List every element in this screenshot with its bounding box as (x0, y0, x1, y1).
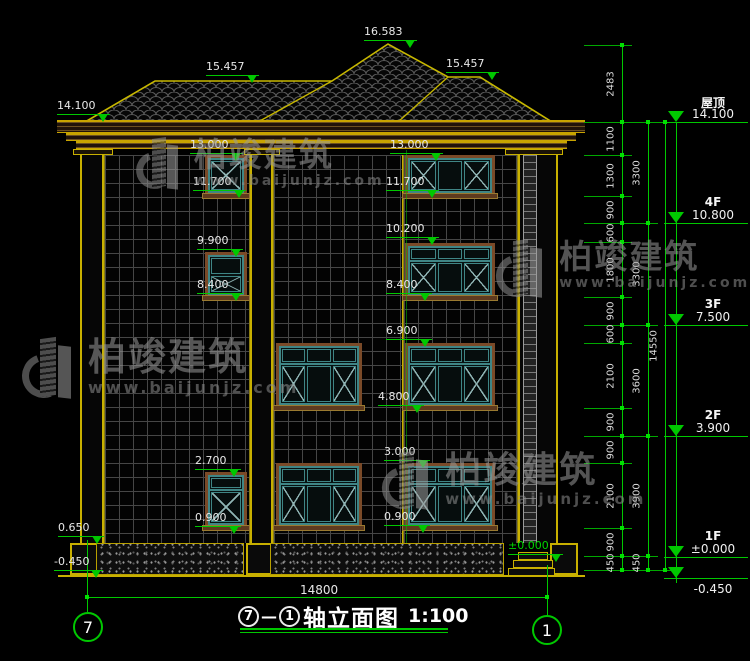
dimension-value: 600 (606, 324, 617, 343)
axis-7-label: 7 (83, 618, 93, 637)
dimension-value: 14550 (649, 330, 660, 362)
dim-tick-dot (620, 434, 624, 438)
transom-lite (464, 469, 489, 482)
elevation-label: 3.000 (384, 446, 430, 461)
fixed-center (438, 366, 463, 403)
casement-left (282, 486, 305, 523)
watermark-logo-tower (40, 337, 56, 397)
cad-elevation-drawing: 16.58315.45715.45714.10013.00011.7009.90… (0, 0, 750, 661)
elevation-label: 0.900 (195, 512, 241, 527)
casement-right (464, 161, 489, 190)
axis-1-label: 1 (542, 621, 552, 640)
fixed-center (438, 486, 463, 523)
elevation-label: 8.400 (386, 279, 432, 294)
floor-elevation: ±0.000 (678, 542, 748, 556)
dim-tick-dot (620, 221, 624, 225)
elevation-label: 13.000 (390, 139, 443, 154)
title-axis-to-bubble: 1 (279, 606, 300, 627)
elevation-label: 11.700 (193, 176, 246, 191)
elevation-label: ±0.000 (508, 540, 563, 555)
dimension-value: 3300 (632, 160, 643, 185)
dim-tick-dot (620, 153, 624, 157)
window-transom (281, 348, 357, 365)
roof-shape (78, 38, 560, 126)
floor-marker-line-vertical (676, 122, 677, 583)
window-transom (281, 468, 357, 485)
title-underline-1 (240, 628, 448, 630)
floor-name: 2F (678, 408, 748, 422)
window-transom (210, 477, 242, 491)
transom-lite (438, 349, 463, 362)
dimension-value: 450 (632, 553, 643, 572)
dim-tick-dot (663, 120, 667, 124)
dim-tick-dot (620, 323, 624, 327)
dim-tick (584, 155, 632, 156)
floor-level-line (664, 122, 748, 123)
window-frame (279, 466, 359, 525)
transom-lite (333, 469, 356, 482)
title-scale: 1:100 (408, 605, 468, 627)
fixed-top (211, 258, 241, 274)
foundation-hatch-left (96, 543, 244, 575)
dimension-value: 900 (606, 301, 617, 320)
transom-lite (211, 478, 241, 488)
floor-level-triangle (668, 567, 684, 578)
fixed-center (307, 366, 330, 403)
dimension-value: 3900 (632, 483, 643, 508)
dim-tick (584, 45, 632, 46)
elevation-label: 11.700 (386, 176, 439, 191)
floor-name: 3F (678, 297, 748, 311)
dim-tick-dot (646, 120, 650, 124)
dimension-value: 1300 (606, 163, 617, 188)
dim-tick-dot (663, 568, 667, 572)
transom-lite (411, 249, 436, 259)
fixed-center (438, 161, 463, 190)
elevation-label: 4.800 (378, 391, 424, 406)
dimension-value: 900 (606, 200, 617, 219)
floor-elevation: 7.500 (678, 310, 748, 324)
dimension-value: 900 (606, 532, 617, 551)
bottom-dim-dot-right (545, 595, 549, 599)
transom-lite (307, 349, 330, 362)
dim-tick-dot (620, 554, 624, 558)
transom-lite (282, 349, 305, 362)
watermark-url: www.baijunjz.com (559, 275, 750, 291)
dim-tick-dot (646, 434, 650, 438)
window-frame (279, 346, 359, 405)
casement-right (333, 486, 356, 523)
dim-tick-dot (620, 120, 624, 124)
dim-tick-dot (620, 295, 624, 299)
floor-level-line (664, 325, 748, 326)
window-transom (410, 248, 490, 262)
eave-band-top (57, 120, 585, 133)
dim-tick-dot (620, 194, 624, 198)
dim-chain-line (665, 122, 666, 570)
window-transom (410, 348, 490, 365)
watermark-brand: 柏竣建筑 (559, 240, 750, 275)
window-transom (410, 468, 490, 485)
transom-lite (333, 349, 356, 362)
floor-level-line (664, 557, 748, 558)
transom-lite (307, 469, 330, 482)
dimension-value: 600 (606, 223, 617, 242)
title-dash: — (261, 607, 277, 626)
elevation-label: 2.700 (195, 455, 241, 470)
level-leader-line (406, 150, 407, 543)
downpipe (523, 155, 537, 543)
elevation-label: 15.457 (206, 61, 259, 76)
title-underline-2 (240, 632, 448, 633)
transom-lite (411, 349, 436, 362)
watermark-logo (24, 338, 80, 406)
elevation-label: 13.000 (190, 139, 243, 154)
dimension-value: 3600 (632, 368, 643, 393)
dim-tick (584, 463, 632, 464)
pilaster-left (80, 155, 104, 543)
casement-right (464, 263, 489, 293)
elevation-label: 15.457 (446, 58, 499, 73)
overall-width-dimension: 14800 (300, 583, 338, 597)
pilaster-middle (250, 155, 273, 543)
foundation-hatch-right (270, 543, 504, 575)
watermark-logo-arc (15, 347, 73, 405)
window (276, 463, 362, 528)
floor-level-line (664, 436, 748, 437)
window (276, 343, 362, 408)
dimension-value: 2483 (606, 71, 617, 96)
bottom-dim-dot-left (85, 595, 89, 599)
dim-tick (584, 196, 632, 197)
floor-elevation: 10.800 (678, 208, 748, 222)
dimension-value: 3300 (632, 261, 643, 286)
elevation-label: 10.200 (386, 223, 439, 238)
window-sashes (281, 365, 357, 404)
dim-tick-dot (620, 240, 624, 244)
floor-name: 1F (678, 529, 748, 543)
dimension-value: 900 (606, 412, 617, 431)
eave-band-low (76, 141, 567, 149)
fixed-center (438, 263, 463, 293)
elevation-label: 0.900 (384, 511, 430, 526)
transom-lite (438, 249, 463, 259)
dim-tick-dot (646, 221, 650, 225)
window-sashes (281, 485, 357, 524)
elevation-label: -0.450 (54, 556, 103, 571)
elevation-label: 8.400 (197, 279, 243, 294)
floor-level-line (664, 223, 748, 224)
transom-lite (282, 469, 305, 482)
transom-lite (411, 469, 436, 482)
dim-tick (584, 122, 675, 123)
floor-name: 4F (678, 195, 748, 209)
elevation-label: 6.900 (386, 325, 432, 340)
axis-bubble-1: 1 (532, 615, 562, 645)
bottom-dim-line (87, 597, 547, 598)
dim-tick (584, 528, 632, 529)
transom-lite (464, 249, 489, 259)
axis-1-stem (547, 565, 548, 615)
dim-tick-dot (646, 554, 650, 558)
floor-elevation: -0.450 (678, 582, 748, 596)
dimension-value: 2100 (606, 483, 617, 508)
axis-7-stem (87, 540, 88, 612)
casement-right (333, 366, 356, 403)
dim-tick-dot (620, 43, 624, 47)
floor-elevation: 3.900 (678, 421, 748, 435)
dim-tick (584, 297, 632, 298)
fixed-center (307, 486, 330, 523)
watermark-logo-tower-2 (58, 345, 71, 399)
ground-line (58, 575, 585, 577)
elevation-label: 9.900 (197, 235, 243, 250)
title-axis-from-bubble: 7 (238, 606, 259, 627)
transom-lite (464, 349, 489, 362)
dimension-value: 2100 (606, 363, 617, 388)
dim-tick-dot (620, 526, 624, 530)
elevation-label: 16.583 (364, 26, 417, 41)
dim-tick (584, 570, 675, 571)
elevation-label: 14.100 (57, 100, 110, 115)
dim-tick-dot (620, 406, 624, 410)
dimension-value: 900 (606, 440, 617, 459)
casement-right (464, 486, 489, 523)
eave-band-mid (66, 133, 576, 141)
casement-right (464, 366, 489, 403)
dimension-value: 1800 (606, 257, 617, 282)
dimension-value: 1100 (606, 126, 617, 151)
dim-tick-dot (646, 323, 650, 327)
watermark-text: 柏竣建筑www.baijunjz.com (559, 240, 750, 291)
floor-elevation: 14.100 (678, 107, 748, 121)
transom-lite (438, 469, 463, 482)
dim-tick (584, 408, 632, 409)
dim-tick-dot (620, 461, 624, 465)
dim-tick-dot (646, 568, 650, 572)
floor-level-line (664, 578, 748, 579)
axis-bubble-7: 7 (73, 612, 103, 642)
dim-tick-dot (620, 568, 624, 572)
dim-tick-dot (620, 341, 624, 345)
casement-left (282, 366, 305, 403)
bay-corner-line (402, 155, 403, 543)
elevation-label: 0.650 (58, 522, 104, 537)
dimension-value: 450 (606, 553, 617, 572)
